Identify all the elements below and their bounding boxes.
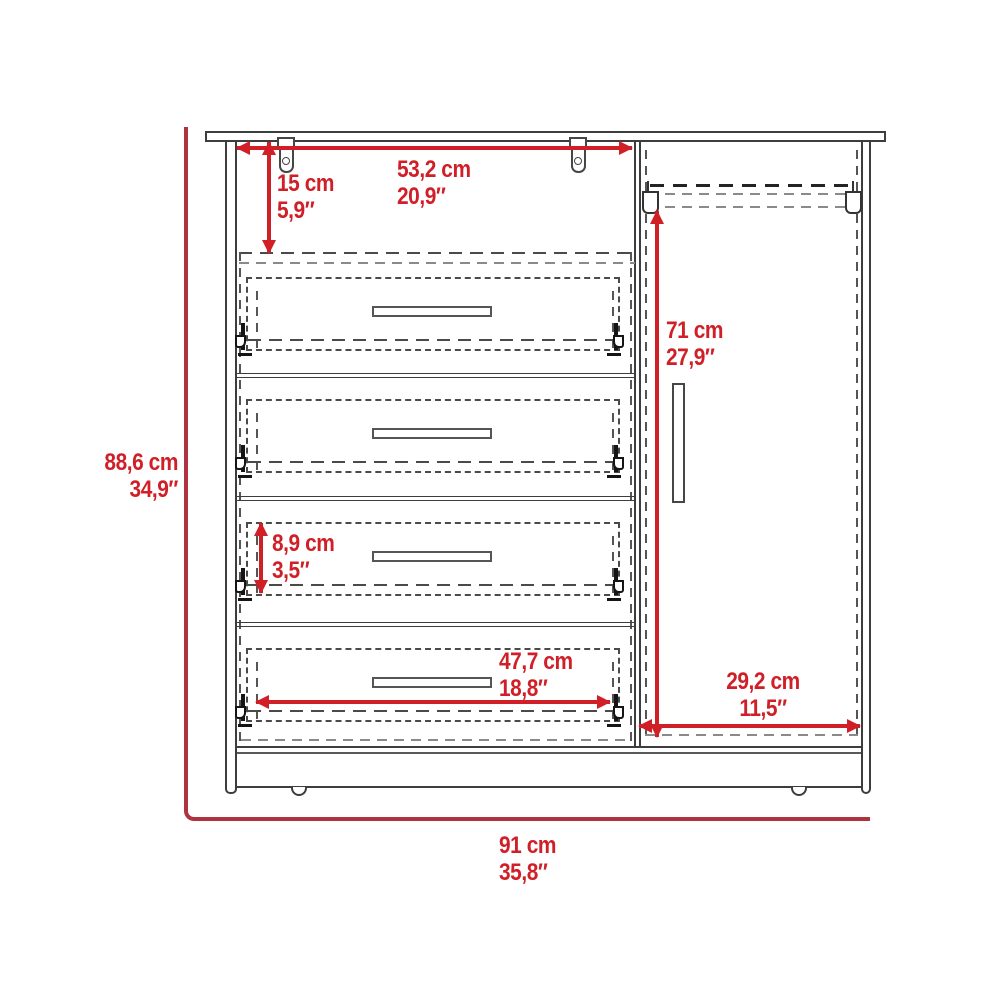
dim-door-opening-width-inch: 11,5″: [693, 695, 832, 722]
drawer-2: [236, 375, 636, 496]
dim-top-width-inch: 20,9″: [397, 183, 471, 210]
dim-door-opening-width-cm: 29,2 cm: [693, 668, 832, 695]
drawer-1-handle: [372, 306, 492, 317]
dim-top-panel-height-cm: 15 cm: [277, 170, 334, 197]
drawer-1-slide-left: [233, 323, 251, 359]
dim-overall-height-cm: 88,6 cm: [74, 449, 178, 476]
dim-overall-width-inch: 35,8″: [499, 859, 556, 886]
rod-bracket-right-tick: [852, 181, 854, 191]
hanging-rod-dash-lower: [648, 206, 856, 208]
dim-label-drawer-width: 47,7 cm 18,8″: [499, 648, 573, 703]
drawer-2-slide-right: [608, 445, 626, 481]
dim-door-opening-height-inch: 27,9″: [666, 344, 723, 371]
drawer-2-box-left-dash: [256, 413, 258, 473]
dim-label-top-width: 53,2 cm 20,9″: [397, 156, 471, 211]
drawer-4-handle: [372, 677, 492, 688]
dim-drawer-front-height-inch: 3,5″: [272, 557, 334, 584]
rod-bracket-right: [845, 191, 862, 214]
dim-label-overall-height: 88,6 cm 34,9″: [74, 449, 178, 504]
drawer-1-bottom-dash: [248, 339, 618, 341]
drawer-1-box-left-dash: [256, 291, 258, 351]
door-outline-right-dash: [856, 150, 858, 736]
dim-drawer-width-inch: 18,8″: [499, 675, 573, 702]
plinth-bottom-line: [237, 786, 861, 788]
plinth-top-line: [237, 752, 861, 754]
drawer-4: [236, 624, 636, 746]
dim-label-top-panel-height: 15 cm 5,9″: [277, 170, 334, 225]
drawer-3-handle: [372, 551, 492, 562]
dim-top-width-cm: 53,2 cm: [397, 156, 471, 183]
dim-door-opening-height-cm: 71 cm: [666, 317, 723, 344]
dim-arrow-drawer-front-height: [259, 523, 263, 593]
dimension-diagram: 53,2 cm 20,9″ 15 cm 5,9″ 88,6 cm 34,9″ 7…: [0, 0, 1000, 1000]
dim-arrow-door-opening-height: [655, 211, 659, 737]
door-handle: [672, 383, 685, 503]
drawer-1: [236, 253, 636, 373]
dim-label-drawer-front-height: 8,9 cm 3,5″: [272, 530, 334, 585]
dim-drawer-width-cm: 47,7 cm: [499, 648, 573, 675]
right-side-panel: [861, 142, 871, 794]
drawer-4-box-left-dash: [256, 662, 258, 722]
dim-arrow-top-width: [237, 146, 632, 150]
body-bottom-line: [236, 746, 862, 748]
drawer-2-bottom-dash: [248, 461, 618, 463]
drawer-3-slide-right: [608, 568, 626, 604]
dim-drawer-front-height-cm: 8,9 cm: [272, 530, 334, 557]
drawer-2-handle: [372, 428, 492, 439]
dim-top-panel-height-inch: 5,9″: [277, 197, 334, 224]
dim-label-door-opening-width: 29,2 cm 11,5″: [693, 668, 832, 723]
drawer-4-slide-left: [233, 694, 251, 730]
wall-bracket-2-hole: [574, 157, 582, 165]
top-board: [205, 131, 886, 142]
drawer-1-slide-right: [608, 323, 626, 359]
drawer-2-slide-left: [233, 445, 251, 481]
dim-arrow-top-panel-height: [267, 142, 271, 253]
door-outline-left-dash: [645, 150, 647, 736]
wall-bracket-1-hole: [282, 157, 290, 165]
drawer-4-bottom-dash: [248, 710, 618, 712]
dim-overall-height-inch: 34,9″: [74, 476, 178, 503]
hanging-rod-dash-upper: [648, 193, 856, 195]
door-outline-bottom-dash: [645, 734, 858, 736]
dim-label-door-opening-height: 71 cm 27,9″: [666, 317, 723, 372]
drawer-3-slide-left: [233, 568, 251, 604]
dim-overall-width-cm: 91 cm: [499, 832, 556, 859]
dim-label-overall-width: 91 cm 35,8″: [499, 832, 556, 887]
dim-arrow-door-opening-width: [639, 724, 860, 728]
hanging-rod-dash: [650, 184, 854, 187]
rod-bracket-left-tick: [647, 181, 649, 191]
